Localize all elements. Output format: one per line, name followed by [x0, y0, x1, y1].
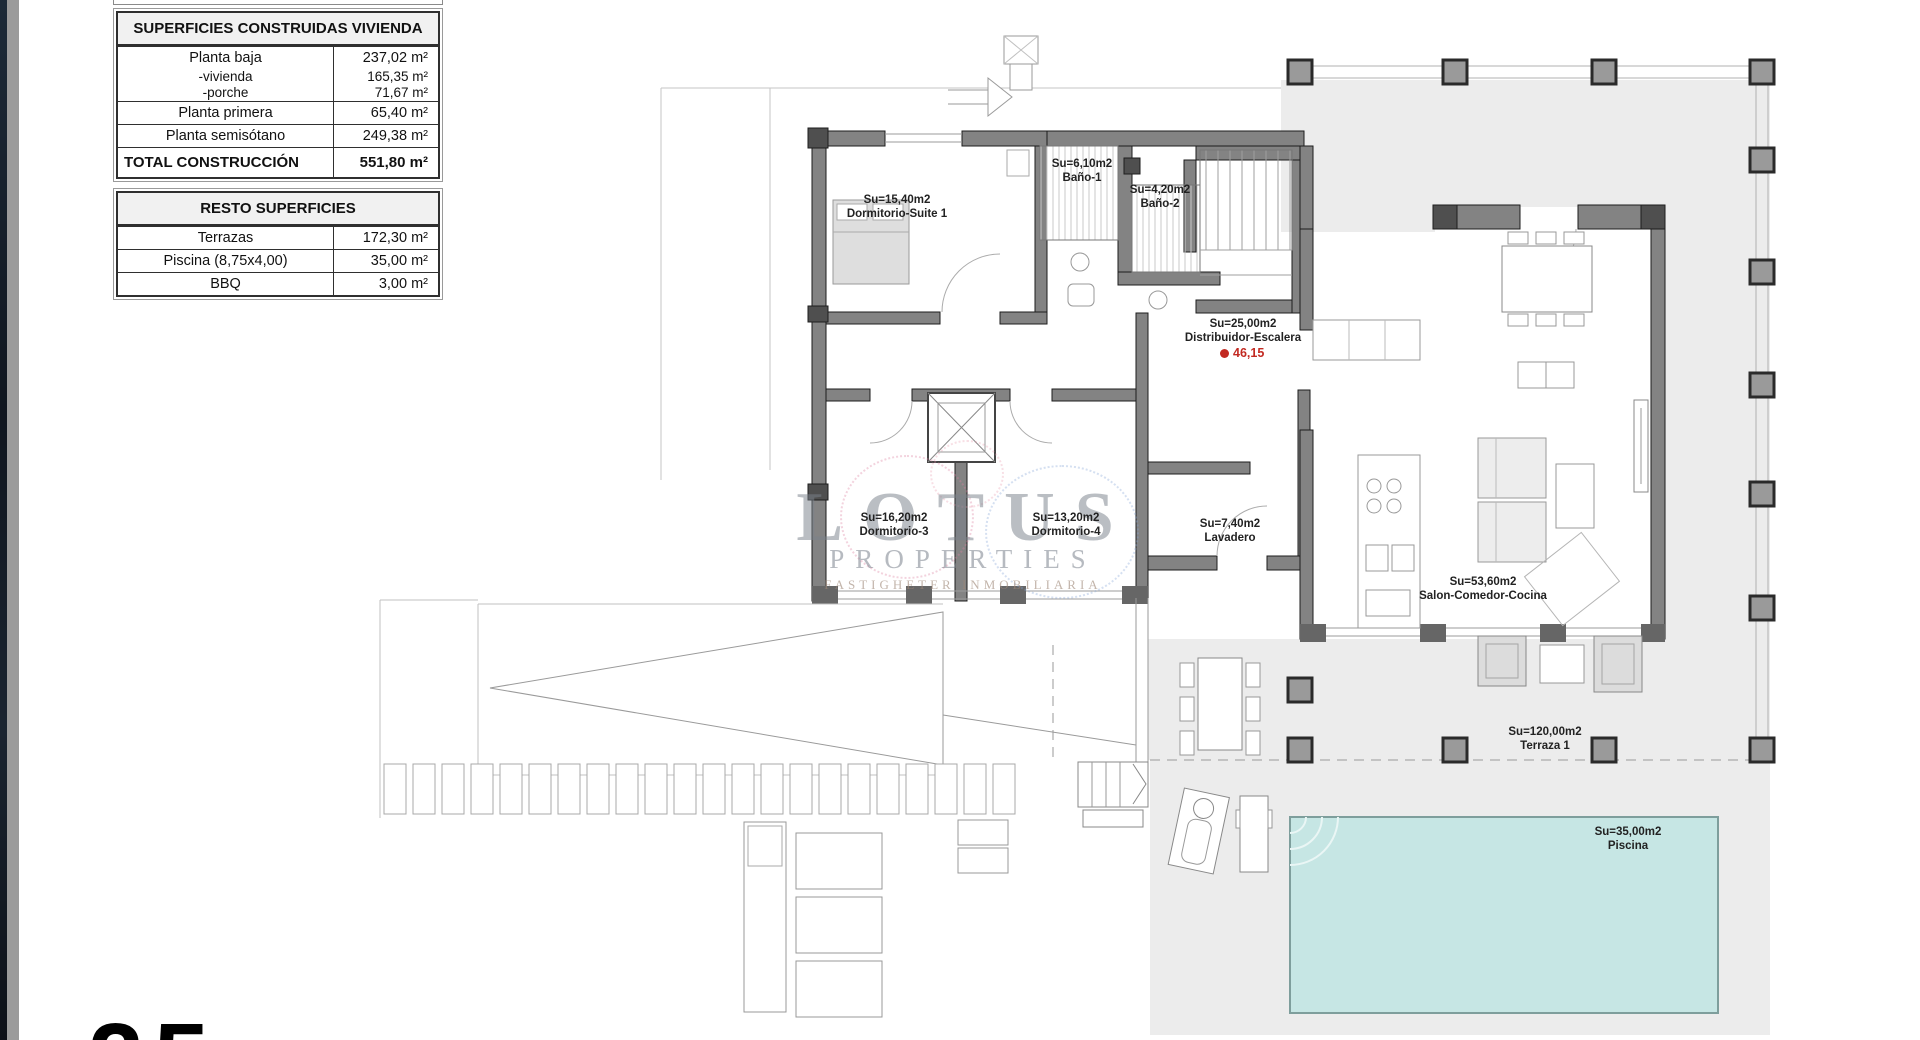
room-label-dormitorio-suite-1: Su=15,40m2Dormitorio-Suite 1: [847, 194, 947, 221]
room-label-salon-comedor-cocina: Su=53,60m2Salon-Comedor-Cocina: [1419, 576, 1547, 603]
room-label-bano-2: Su=4,20m2Baño-2: [1130, 184, 1190, 211]
table-row: Planta primera 65,40 m²: [118, 101, 438, 124]
room-label-terraza-1: Su=120,00m2Terraza 1: [1508, 726, 1581, 753]
room-label-distribuidor-escalera: Su=25,00m2Distribuidor-Escalera: [1185, 318, 1301, 345]
outdoor-structures: [380, 598, 1148, 1017]
room-label-piscina: Su=35,00m2Piscina: [1595, 826, 1662, 853]
table-row: Planta semisótano 249,38 m²: [118, 124, 438, 147]
table-title: SUPERFICIES CONSTRUIDAS VIVIENDA: [118, 13, 438, 46]
cut-off-table-edge: [113, 0, 443, 5]
table-row: Terrazas 172,30 m²: [118, 226, 438, 249]
page-number: 25: [88, 1012, 219, 1040]
floor-plan-page: LOTUS PROPERTIES FASTIGHETER INMOBILIARI…: [0, 0, 1920, 1040]
elevator-shaft: [928, 393, 995, 462]
table-row: Planta baja 237,02 m²: [118, 46, 438, 69]
table-total-row: TOTAL CONSTRUCCIÓN 551,80 m²: [118, 147, 438, 177]
room-label-dormitorio-3: Su=16,20m2Dormitorio-3: [860, 512, 929, 539]
level-marker-value: 46,15: [1233, 346, 1264, 360]
table-row: BBQ 3,00 m²: [118, 272, 438, 295]
table-superficies-construidas: SUPERFICIES CONSTRUIDAS VIVIENDA Planta …: [113, 8, 443, 182]
table-row: -porche 71,67 m²: [118, 85, 438, 101]
room-label-bano-1: Su=6,10m2Baño-1: [1052, 158, 1112, 185]
table-title: RESTO SUPERFICIES: [118, 193, 438, 226]
table-row: Piscina (8,75x4,00) 35,00 m²: [118, 249, 438, 272]
room-label-dormitorio-4: Su=13,20m2Dormitorio-4: [1032, 512, 1101, 539]
level-marker-dot: [1220, 349, 1229, 358]
level-marker: 46,15: [1220, 346, 1264, 360]
table-row: -vivienda 165,35 m²: [118, 69, 438, 85]
table-resto-superficies: RESTO SUPERFICIES Terrazas 172,30 m² Pis…: [113, 188, 443, 300]
room-label-lavadero: Su=7,40m2Lavadero: [1200, 518, 1260, 545]
area-tables: SUPERFICIES CONSTRUIDAS VIVIENDA Planta …: [113, 0, 443, 300]
